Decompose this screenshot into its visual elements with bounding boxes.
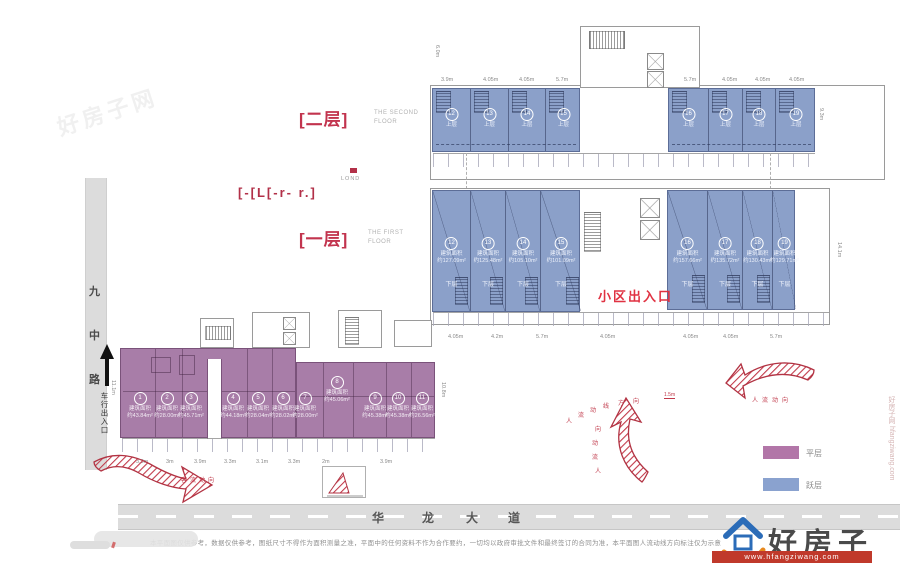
community-entrance-label: 小区出入口	[598, 286, 673, 305]
unit-14-upper: 14 上层	[521, 108, 534, 129]
podium-core-tower	[252, 312, 310, 348]
flow-direction-label: 客流动向	[181, 475, 217, 484]
dim-label: 4.05m	[683, 334, 698, 340]
unit-number: 4	[227, 392, 240, 405]
unit-number: 3	[185, 392, 198, 405]
flow-arc-char: 流	[578, 410, 584, 419]
dim-label: 5.7m	[536, 334, 548, 340]
align-dash-line	[466, 153, 467, 189]
elevator-icon	[283, 317, 296, 330]
second-floor-title: [二层]	[299, 105, 348, 130]
unit-bay: 19 上层	[776, 89, 816, 151]
unit-3: 3 建筑面积 约45.71m²	[172, 392, 210, 421]
unit-level: 上层	[683, 122, 694, 129]
dim-label-vertical: 6.0m	[434, 45, 440, 57]
unit-area: 约127.09m²	[437, 258, 466, 265]
stairs-icon	[345, 317, 359, 345]
dim-label: 4.05m	[483, 77, 498, 83]
dim-label: 3.9m	[441, 77, 453, 83]
unit-19-upper: 19 上层	[790, 108, 803, 129]
unit-number: 15	[555, 237, 568, 250]
left-road-char: 路	[89, 371, 100, 387]
dim-label: 4.2m	[491, 334, 503, 340]
unit-number: 7	[299, 392, 312, 405]
first-floor-title: [一层]	[299, 225, 348, 250]
dim-label: 4.05m	[519, 77, 534, 83]
second-floor-left-block: 12 上层 13 上层 14 上层 15 上层	[432, 88, 580, 152]
unit-number: 14	[521, 108, 534, 121]
unit-level: 上层	[790, 122, 801, 129]
unit-bay: 18 上层	[743, 89, 776, 151]
first-floor-en-line2: FLOOR	[368, 238, 404, 247]
unit-12-lower: 12 建筑面积 约127.09m² 下层	[437, 237, 466, 288]
unit-bay: 16 上层	[669, 89, 709, 151]
unit-number: 8	[331, 376, 344, 389]
first-floor-right-block: 16 建筑面积 约157.66m² 下层 17 建筑面积 约135.72m² 下…	[667, 190, 795, 310]
legend-swatch-flat	[763, 446, 799, 459]
unit-area: 约45.06m²	[324, 397, 350, 404]
unit-level: 下层	[445, 279, 457, 288]
bottom-road-char: 龙	[422, 509, 434, 526]
unit-15-upper: 15 上层	[557, 108, 570, 129]
dim-label: 3.1m	[256, 459, 268, 465]
legend-label-flat: 平层	[806, 448, 822, 459]
unit-bay: 15 建筑面积 约101.09m² 下层	[541, 191, 581, 311]
second-floor-en-line1: THE SECOND	[374, 109, 418, 118]
dim-label: 5.7m	[556, 77, 568, 83]
dim-label: 4.05m	[723, 334, 738, 340]
unit-number: 13	[482, 237, 495, 250]
unit-area: 约130.43m²	[743, 258, 772, 265]
unit-level: 下层	[517, 279, 529, 288]
dim-label: 2m	[322, 459, 330, 465]
unit-level: 下层	[681, 279, 693, 288]
unit-bay: 17 上层	[709, 89, 743, 151]
bottom-road-char: 道	[508, 509, 520, 526]
balcony-dash-line	[672, 144, 811, 145]
podium-tower	[200, 318, 234, 348]
second-floor-right-block: 16 上层 17 上层 18 上层 19 上层	[668, 88, 815, 152]
dim-label: 3.3m	[224, 459, 236, 465]
left-road-char: 九	[89, 283, 100, 299]
unit-bay: 18 建筑面积 约130.43m² 下层	[743, 191, 773, 309]
unit-16-upper: 16 上层	[682, 108, 695, 129]
dim-label: 5.7m	[684, 77, 696, 83]
flow-col-char: 动	[592, 438, 598, 447]
unit-level: 下层	[751, 279, 763, 288]
first-floor-en-line1: THE FIRST	[368, 229, 404, 238]
erased-smudge	[70, 541, 110, 549]
dim-label-vertical: 14.1m	[836, 242, 842, 257]
unit-level: 上层	[753, 122, 764, 129]
second-floor-en-line2: FLOOR	[374, 118, 418, 127]
flow-arc-char: 线	[603, 401, 609, 410]
brand-flag-icon	[350, 168, 357, 173]
vehicle-entrance-label: 车行出入口	[99, 392, 110, 435]
unit-14-lower: 14 建筑面积 约105.10m² 下层	[509, 237, 538, 288]
unit-level: 上层	[558, 122, 569, 129]
faint-watermark: 好房子网	[53, 80, 162, 143]
unit-13-upper: 13 上层	[483, 108, 496, 129]
unit-number: 18	[753, 108, 766, 121]
unit-level: 上层	[720, 122, 731, 129]
unit-area: 约157.66m²	[673, 258, 702, 265]
unit-level: 上层	[484, 122, 495, 129]
unit-number: 1	[134, 392, 147, 405]
flow-arc-char: 向	[633, 396, 639, 405]
unit-bay: 17 建筑面积 约135.72m² 下层	[708, 191, 743, 309]
detail-drawing	[322, 466, 366, 498]
unit-area: 约26.56m²	[409, 413, 435, 420]
second-floor-canopy-strip	[433, 153, 815, 167]
unit-18-lower: 18 建筑面积 约130.43m² 下层	[743, 237, 772, 288]
unit-number: 14	[517, 237, 530, 250]
elevator-icon	[640, 198, 660, 218]
unit-number: 18	[751, 237, 764, 250]
unit-area: 约101.09m²	[547, 258, 576, 265]
flow-arc-char: 动	[590, 405, 596, 414]
unit-bay: 16 建筑面积 约157.66m² 下层	[668, 191, 708, 309]
elevator-icon	[647, 53, 664, 70]
bottom-road-char: 大	[466, 509, 478, 526]
unit-bay: 12 建筑面积 约127.09m² 下层	[433, 191, 471, 311]
unit-8: 8 建筑面积 约45.06m²	[318, 376, 356, 405]
unit-15-lower: 15 建筑面积 约101.09m² 下层	[547, 237, 576, 288]
first-floor-left-block: 12 建筑面积 约127.09m² 下层 13 建筑面积 约125.48m² 下…	[432, 190, 580, 312]
unit-number: 16	[681, 237, 694, 250]
unit-number: 11	[416, 392, 429, 405]
unit-area: 约45.71m²	[178, 413, 204, 420]
unit-11: 11 建筑面积 约26.56m²	[403, 392, 441, 421]
dim-label-vertical: 11.1m	[110, 380, 116, 395]
dim-label: 4.05m	[722, 77, 737, 83]
dim-label: 3.3m	[288, 459, 300, 465]
dim-label: 4.05m	[448, 334, 463, 340]
unit-bay: 14 上层	[509, 89, 546, 151]
disclaimer-text: 本平面图仅供参考，数据仅供参考，图纸尺寸不得作为面积测量之准，平面中的任何资料不…	[150, 537, 721, 547]
legend-label-duplex: 跃层	[806, 480, 822, 491]
ramp-dim-label: 1.5m	[664, 392, 675, 399]
unit-bay: 13 建筑面积 约125.48m² 下层	[471, 191, 506, 311]
dim-label: 4.05m	[600, 334, 615, 340]
dim-label: 4.05m	[789, 77, 804, 83]
unit-18-upper: 18 上层	[753, 108, 766, 129]
balcony-dash-line	[436, 144, 576, 145]
unit-17-upper: 17 上层	[719, 108, 732, 129]
unit-area: 约135.72m²	[711, 258, 740, 265]
unit-number: 17	[719, 237, 732, 250]
unit-area: 约28.00m²	[292, 413, 318, 420]
elevator-icon	[283, 332, 296, 345]
bottom-road-char: 华	[372, 509, 384, 526]
elevator-icon	[647, 71, 664, 88]
fixture	[151, 357, 171, 373]
unit-level: 上层	[521, 122, 532, 129]
dim-label: 5.7m	[770, 334, 782, 340]
unit-number: 12	[445, 108, 458, 121]
stairs-icon	[205, 326, 231, 340]
podium-tower	[338, 310, 382, 348]
floorplan-canvas: 好房子网 九 中 路 车行出入口 华 龙 大 道 [二层] THE SECOND…	[0, 0, 900, 568]
unit-number: 5	[252, 392, 265, 405]
flow-col-char: 人	[595, 466, 601, 475]
elevator-icon	[640, 220, 660, 240]
unit-12-upper: 12 上层	[445, 108, 458, 129]
unit-number: 16	[682, 108, 695, 121]
first-floor-title-en: THE FIRST FLOOR	[368, 229, 404, 246]
dim-label: 4.05m	[755, 77, 770, 83]
brand-logo-marks: [-[L[-r- r.]	[238, 185, 317, 200]
north-arrow-head	[100, 344, 114, 359]
flow-col-char: 流	[592, 452, 598, 461]
unit-17-lower: 17 建筑面积 约135.72m² 下层	[711, 237, 740, 288]
north-arrow-stem	[105, 358, 109, 386]
unit-area: 约129.71m²	[770, 258, 799, 265]
legend-swatch-duplex	[763, 478, 799, 491]
unit-bay: 19 建筑面积 约129.71m² 下层	[773, 191, 796, 309]
unit-bay: 15 上层	[546, 89, 581, 151]
dim-label-vertical: 9.3m	[818, 108, 824, 120]
unit-number: 19	[778, 237, 791, 250]
brand-logo-name: LOND	[341, 176, 360, 182]
flow-arc-char: 方	[618, 398, 624, 407]
unit-number: 13	[483, 108, 496, 121]
flow-arc-char: 人	[566, 416, 572, 425]
flow-direction-label: 人流动向	[752, 395, 792, 404]
flow-col-char: 向	[595, 424, 601, 433]
stairs-icon	[584, 212, 601, 252]
side-watermark: 好房子网 hfangziwang.com	[886, 396, 896, 480]
unit-bay: 13 上层	[471, 89, 509, 151]
unit-level: 下层	[719, 279, 731, 288]
unit-level: 下层	[482, 279, 494, 288]
unit-13-lower: 13 建筑面积 约125.48m² 下层	[474, 237, 503, 288]
align-dash-line	[770, 153, 771, 189]
unit-bay: 12 上层	[433, 89, 471, 151]
detail-hatch	[323, 467, 367, 499]
unit-area: 约125.48m²	[474, 258, 503, 265]
second-floor-core-tower	[580, 26, 700, 88]
unit-number: 19	[790, 108, 803, 121]
left-road-char: 中	[89, 327, 100, 343]
unit-19-lower: 19 建筑面积 约129.71m² 下层	[770, 237, 799, 288]
unit-number: 17	[719, 108, 732, 121]
dim-label-vertical: 10.8m	[440, 382, 446, 397]
stairs-icon	[589, 31, 625, 49]
unit-level: 下层	[555, 279, 567, 288]
second-floor-title-en: THE SECOND FLOOR	[374, 109, 418, 126]
unit-number: 15	[557, 108, 570, 121]
site-url-banner: www.hfangziwang.com	[712, 551, 872, 563]
unit-area: 约105.10m²	[509, 258, 538, 265]
unit-number: 12	[445, 237, 458, 250]
unit-bay: 14 建筑面积 约105.10m² 下层	[506, 191, 541, 311]
fixture	[179, 355, 195, 375]
unit-level: 上层	[446, 122, 457, 129]
dim-label: 3.9m	[380, 459, 392, 465]
podium-tower	[394, 320, 432, 347]
unit-16-lower: 16 建筑面积 约157.66m² 下层	[673, 237, 702, 288]
first-floor-storefront-strip	[433, 312, 829, 326]
unit-level: 下层	[778, 279, 790, 288]
